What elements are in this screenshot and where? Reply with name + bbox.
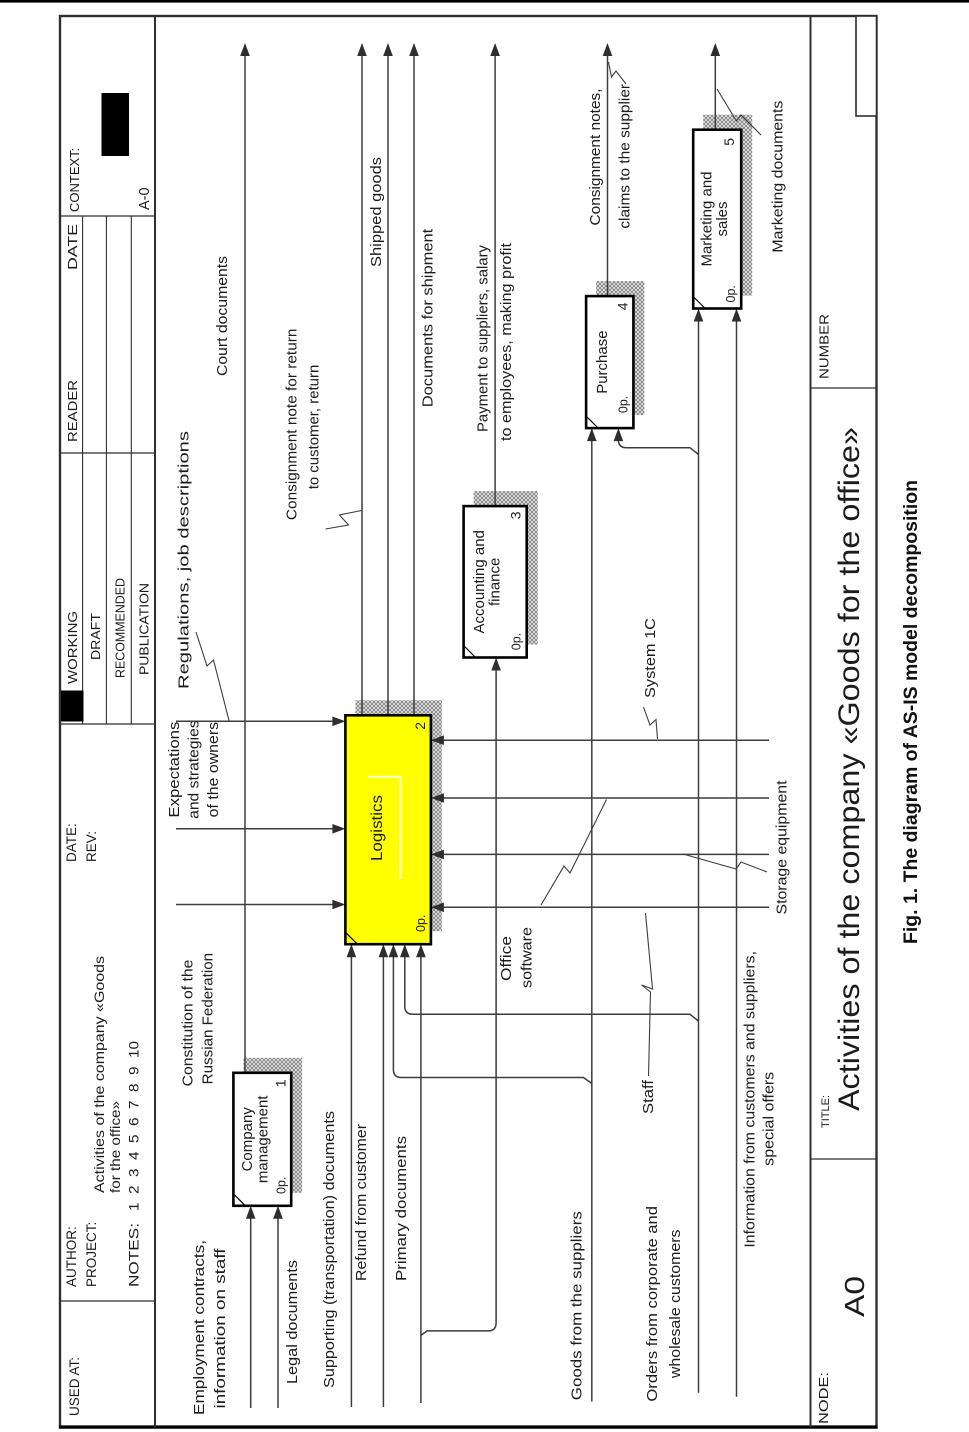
svg-text:0р.: 0р. xyxy=(617,396,631,413)
svg-text:Supporting (transportation) do: Supporting (transportation) documents xyxy=(321,1111,338,1388)
svg-text:software: software xyxy=(519,927,536,988)
svg-text:sales: sales xyxy=(714,201,731,236)
svg-text:RECOMMENDED: RECOMMENDED xyxy=(114,578,128,678)
svg-text:CONTEXT:: CONTEXT: xyxy=(67,148,82,212)
svg-text:DATE:: DATE: xyxy=(64,823,79,862)
svg-text:TITLE:: TITLE: xyxy=(820,1095,832,1128)
svg-text:management: management xyxy=(255,1095,272,1183)
svg-text:Primary documents: Primary documents xyxy=(393,1136,410,1281)
svg-text:DRAFT: DRAFT xyxy=(89,613,103,660)
svg-text:Russian Federation: Russian Federation xyxy=(200,953,217,1084)
svg-text:4: 4 xyxy=(615,302,631,310)
svg-text:Consignment note for return: Consignment note for return xyxy=(284,329,301,521)
svg-text:NODE:: NODE: xyxy=(817,1372,831,1424)
svg-text:1 2 3 4 5 6 7 8 9 10: 1 2 3 4 5 6 7 8 9 10 xyxy=(127,1041,142,1211)
svg-text:Fig. 1. The diagram of AS-IS m: Fig. 1. The diagram of AS-IS model decom… xyxy=(900,480,922,944)
svg-text:Expectations: Expectations xyxy=(166,722,183,818)
svg-text:Goods from the suppliers: Goods from the suppliers xyxy=(569,1211,586,1400)
svg-text:Purchase: Purchase xyxy=(594,330,611,393)
svg-text:Company: Company xyxy=(239,1107,256,1172)
svg-text:USED AT:: USED AT: xyxy=(67,1357,82,1416)
svg-text:for the office»: for the office» xyxy=(107,1101,123,1193)
svg-text:finance: finance xyxy=(487,558,504,606)
svg-text:Court documents: Court documents xyxy=(214,256,231,376)
svg-text:A0: A0 xyxy=(839,1276,870,1317)
svg-text:claims to the supplier: claims to the supplier xyxy=(617,84,634,229)
svg-text:Refund from customer: Refund from customer xyxy=(353,1124,370,1281)
svg-text:0р.: 0р. xyxy=(510,633,524,650)
svg-text:System 1C: System 1C xyxy=(642,618,659,698)
svg-text:Consignment notes,: Consignment notes, xyxy=(587,89,604,226)
svg-text:Storage equipment: Storage equipment xyxy=(774,780,791,915)
svg-text:Accounting and: Accounting and xyxy=(471,530,488,633)
svg-text:PUBLICATION: PUBLICATION xyxy=(138,583,152,675)
svg-text:1: 1 xyxy=(273,1079,289,1087)
svg-text:Staff: Staff xyxy=(640,1079,657,1114)
svg-text:to employees, making profit: to employees, making profit xyxy=(498,242,515,441)
svg-text:5: 5 xyxy=(721,138,737,146)
svg-text:NOTES:: NOTES: xyxy=(127,1223,142,1287)
svg-text:Regulations, job descriptions: Regulations, job descriptions xyxy=(176,431,193,689)
svg-text:to customer, return: to customer, return xyxy=(306,365,323,490)
svg-text:0р.: 0р. xyxy=(724,285,738,302)
svg-text:AUTHOR:: AUTHOR: xyxy=(64,1226,79,1287)
svg-text:Office: Office xyxy=(498,936,515,981)
svg-text:NUMBER: NUMBER xyxy=(818,314,832,379)
svg-text:Activities of the company «Goo: Activities of the company «Goods for the… xyxy=(833,427,866,1111)
svg-text:Marketing and: Marketing and xyxy=(699,171,716,266)
svg-text:Logistics: Logistics xyxy=(369,795,386,861)
svg-text:Payment to suppliers, salary: Payment to suppliers, salary xyxy=(475,245,492,432)
svg-text:Legal documents: Legal documents xyxy=(284,1260,301,1384)
svg-text:Employment contracts,: Employment contracts, xyxy=(191,1240,208,1415)
svg-text:and strategies: and strategies xyxy=(185,720,202,819)
svg-text:READER: READER xyxy=(66,380,80,442)
svg-text:Shipped goods: Shipped goods xyxy=(368,157,385,267)
svg-text:special offers: special offers xyxy=(761,1072,778,1166)
svg-text:0р.: 0р. xyxy=(275,1177,289,1194)
svg-text:Activities of the company «Goo: Activities of the company «Goods xyxy=(91,956,107,1193)
svg-text:Information from customers and: Information from customers and suppliers… xyxy=(742,951,759,1248)
svg-text:Orders from corporate and: Orders from corporate and xyxy=(644,1206,661,1402)
svg-text:wholesale customers: wholesale customers xyxy=(667,1230,684,1380)
svg-text:Marketing documents: Marketing documents xyxy=(770,101,787,253)
svg-text:WORKING: WORKING xyxy=(66,611,80,684)
svg-text:Documents for shipment: Documents for shipment xyxy=(420,228,437,407)
svg-text:0р.: 0р. xyxy=(414,915,428,932)
svg-text:3: 3 xyxy=(508,511,524,519)
svg-text:PROJECT:: PROJECT: xyxy=(84,1222,99,1287)
svg-text:A-0: A-0 xyxy=(137,187,153,210)
svg-text:2: 2 xyxy=(412,722,428,730)
svg-text:information on staff: information on staff xyxy=(212,1247,229,1408)
svg-text:DATE: DATE xyxy=(66,224,80,270)
svg-text:Constitution of the: Constitution of the xyxy=(180,960,197,1087)
svg-text:REV:: REV: xyxy=(84,831,99,862)
svg-text:of the owners: of the owners xyxy=(205,722,222,817)
